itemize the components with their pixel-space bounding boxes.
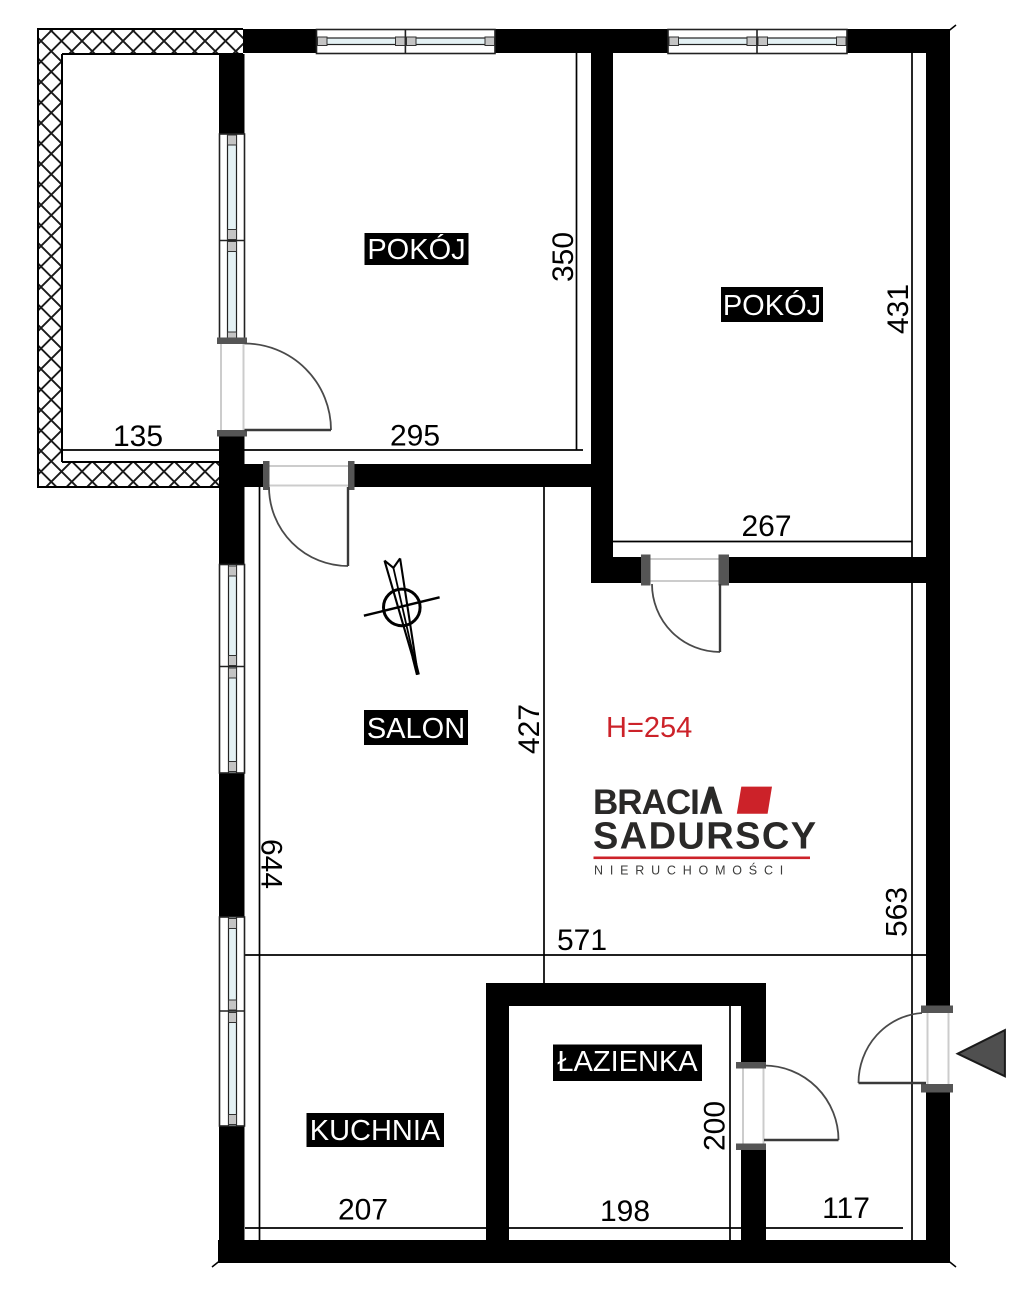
svg-text:431: 431 — [882, 284, 915, 334]
svg-text:KUCHNIA: KUCHNIA — [310, 1115, 441, 1147]
svg-text:200: 200 — [699, 1101, 732, 1151]
svg-text:SALON: SALON — [367, 713, 465, 745]
svg-text:POKÓJ: POKÓJ — [367, 233, 465, 266]
svg-text:295: 295 — [390, 420, 440, 453]
svg-text:ŁAZIENKA: ŁAZIENKA — [557, 1046, 698, 1078]
svg-text:SADURSCY: SADURSCY — [593, 816, 817, 858]
svg-text:117: 117 — [822, 1192, 870, 1225]
svg-text:563: 563 — [881, 887, 914, 937]
svg-text:NIERUCHOMOŚCI: NIERUCHOMOŚCI — [594, 863, 790, 878]
svg-text:H=254: H=254 — [606, 712, 692, 744]
svg-text:571: 571 — [557, 924, 607, 957]
svg-text:207: 207 — [338, 1194, 388, 1227]
svg-text:POKÓJ: POKÓJ — [723, 289, 821, 322]
svg-text:644: 644 — [255, 839, 288, 889]
svg-text:350: 350 — [547, 232, 580, 282]
svg-text:267: 267 — [741, 510, 791, 543]
svg-text:135: 135 — [113, 420, 163, 453]
svg-text:198: 198 — [600, 1195, 650, 1228]
svg-text:427: 427 — [513, 704, 546, 754]
